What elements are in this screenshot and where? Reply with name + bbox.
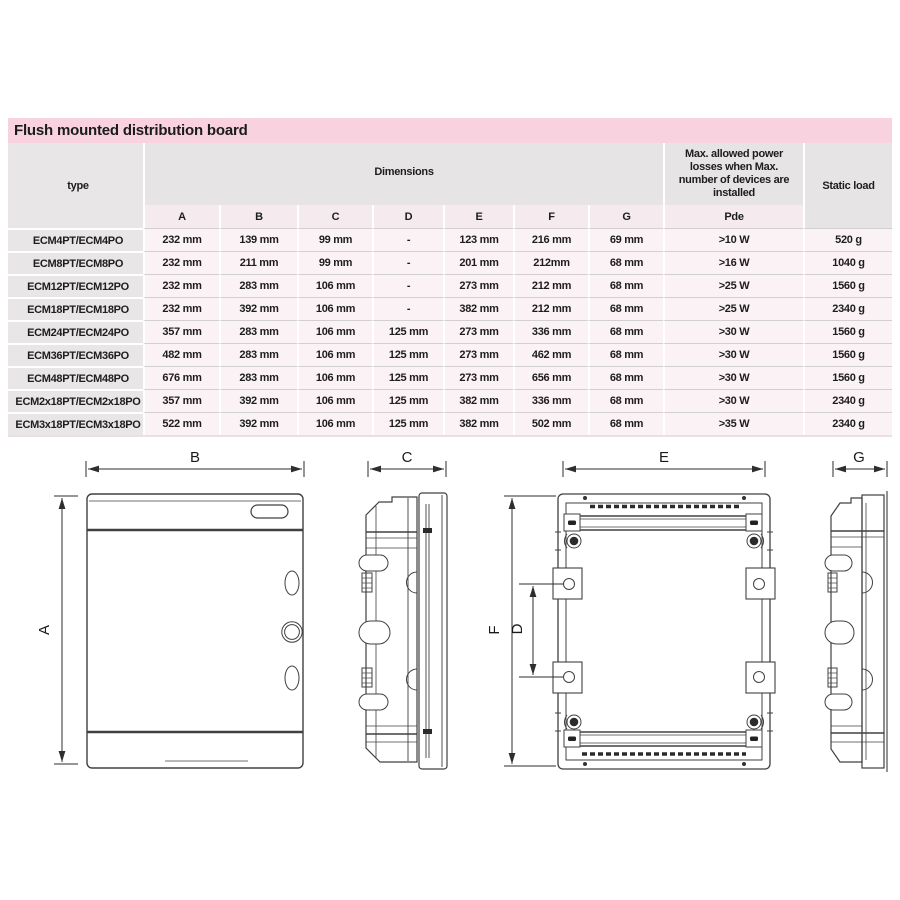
cell-type: ECM4PT/ECM4PO — [8, 228, 143, 251]
recess-box-outline — [558, 494, 770, 769]
cell-static-load: 1040 g — [803, 251, 892, 274]
cell-static-load: 1560 g — [803, 343, 892, 366]
col-header-d: D — [372, 205, 443, 228]
cell-dim-e: 273 mm — [443, 366, 513, 389]
cell-dim-b: 283 mm — [219, 320, 297, 343]
cell-dim-d: 125 mm — [372, 366, 443, 389]
cell-pde: >10 W — [663, 228, 803, 251]
cell-dim-e: 123 mm — [443, 228, 513, 251]
col-header-b: B — [219, 205, 297, 228]
dim-label-g: G — [853, 449, 865, 466]
cell-pde: >16 W — [663, 251, 803, 274]
cell-dim-g: 68 mm — [588, 274, 663, 297]
clip-latch — [568, 521, 576, 526]
cell-dim-b: 211 mm — [219, 251, 297, 274]
dim-label-e: E — [659, 449, 669, 466]
cell-dim-c: 106 mm — [297, 389, 372, 412]
dimension-c: C — [368, 449, 446, 477]
cell-dim-d: - — [372, 228, 443, 251]
col-header-e: E — [443, 205, 513, 228]
hinge-pin-upper — [423, 528, 432, 533]
dim-label-b: B — [190, 449, 200, 466]
cell-static-load: 1560 g — [803, 366, 892, 389]
dimensions-table: type Dimensions Max. allowed power losse… — [8, 143, 892, 437]
cell-dim-f: 212mm — [513, 251, 588, 274]
cable-knockout — [825, 621, 854, 644]
cell-dim-a: 232 mm — [143, 274, 219, 297]
cell-dim-f: 336 mm — [513, 389, 588, 412]
door-frame-profile — [419, 493, 447, 769]
cell-dim-c: 106 mm — [297, 274, 372, 297]
recessed-side-view-drawing: G — [825, 449, 887, 772]
corner-screws — [555, 532, 773, 731]
cell-dim-e: 382 mm — [443, 412, 513, 435]
cell-type: ECM12PT/ECM12PO — [8, 274, 143, 297]
cell-type: ECM24PT/ECM24PO — [8, 320, 143, 343]
cell-dim-a: 676 mm — [143, 366, 219, 389]
dim-label-f: F — [486, 625, 503, 634]
cell-dim-a: 357 mm — [143, 320, 219, 343]
fixing-lug-arc — [862, 572, 873, 593]
cell-dim-b: 392 mm — [219, 412, 297, 435]
rib-box — [362, 573, 372, 592]
cell-dim-d: - — [372, 297, 443, 320]
col-header-type: type — [8, 143, 143, 228]
dimension-g: G — [833, 449, 887, 477]
corner-screw-head — [570, 718, 579, 727]
section-title-bar: Flush mounted distribution board — [8, 118, 892, 143]
cell-static-load: 1560 g — [803, 274, 892, 297]
cell-dim-f: 502 mm — [513, 412, 588, 435]
cell-dim-c: 106 mm — [297, 320, 372, 343]
cell-dim-e: 273 mm — [443, 343, 513, 366]
cell-pde: >35 W — [663, 412, 803, 435]
cell-dim-g: 68 mm — [588, 251, 663, 274]
cell-dim-a: 357 mm — [143, 389, 219, 412]
cell-dim-e: 273 mm — [443, 320, 513, 343]
col-header-static-load: Static load — [803, 143, 892, 228]
cell-dim-c: 106 mm — [297, 412, 372, 435]
col-header-pde: Pde — [663, 205, 803, 228]
cell-dim-a: 232 mm — [143, 228, 219, 251]
cell-dim-e: 201 mm — [443, 251, 513, 274]
cell-dim-g: 68 mm — [588, 343, 663, 366]
screw-dot — [742, 762, 746, 766]
screw-dot — [583, 762, 587, 766]
cell-type: ECM48PT/ECM48PO — [8, 366, 143, 389]
cell-dim-b: 283 mm — [219, 274, 297, 297]
cell-dim-f: 216 mm — [513, 228, 588, 251]
screw-dot — [742, 496, 746, 500]
rib-box — [828, 573, 837, 592]
mounting-tab — [746, 662, 775, 693]
dim-label-c: C — [402, 449, 413, 466]
cell-dim-b: 283 mm — [219, 343, 297, 366]
flange-profile — [862, 495, 884, 768]
lock-knob-inner — [285, 625, 300, 640]
dimension-b: B — [86, 449, 304, 477]
dimension-a: A — [36, 496, 78, 764]
cable-knockout — [359, 555, 388, 571]
cell-type: ECM3x18PT/ECM3x18PO — [8, 412, 143, 435]
cell-dim-a: 522 mm — [143, 412, 219, 435]
dim-label-a: A — [36, 625, 53, 635]
cell-dim-d: 125 mm — [372, 343, 443, 366]
cell-dim-f: 462 mm — [513, 343, 588, 366]
cell-type: ECM8PT/ECM8PO — [8, 251, 143, 274]
rib-box — [362, 668, 372, 687]
cable-knockout — [359, 694, 388, 710]
cell-static-load: 520 g — [803, 228, 892, 251]
cell-dim-f: 656 mm — [513, 366, 588, 389]
col-header-f: F — [513, 205, 588, 228]
corner-screw-head — [750, 537, 759, 546]
cell-pde: >30 W — [663, 320, 803, 343]
cell-dim-a: 232 mm — [143, 297, 219, 320]
cell-dim-c: 99 mm — [297, 228, 372, 251]
cell-dim-b: 283 mm — [219, 366, 297, 389]
cell-static-load: 2340 g — [803, 389, 892, 412]
cell-dim-b: 139 mm — [219, 228, 297, 251]
ribbed-knockout — [362, 668, 372, 687]
col-header-power-losses: Max. allowed power losses when Max. numb… — [663, 143, 803, 205]
ribbed-knockout — [828, 573, 837, 592]
col-header-a: A — [143, 205, 219, 228]
cell-pde: >30 W — [663, 366, 803, 389]
cell-dim-c: 106 mm — [297, 366, 372, 389]
corner-screw-head — [750, 718, 759, 727]
cell-dim-a: 232 mm — [143, 251, 219, 274]
rib-box — [828, 668, 837, 687]
cell-dim-a: 482 mm — [143, 343, 219, 366]
front-view-drawing: B A — [36, 449, 304, 768]
cell-type: ECM2x18PT/ECM2x18PO — [8, 389, 143, 412]
col-header-g: G — [588, 205, 663, 228]
cell-dim-g: 68 mm — [588, 366, 663, 389]
back-view-drawing: E F — [486, 449, 775, 769]
cell-pde: >30 W — [663, 389, 803, 412]
datasheet-page: Flush mounted distribution board type Di… — [0, 0, 900, 900]
dim-label-d: D — [509, 623, 526, 634]
cell-dim-d: 125 mm — [372, 389, 443, 412]
door-handle-slot — [251, 505, 288, 518]
cell-dim-b: 392 mm — [219, 297, 297, 320]
cell-dim-e: 273 mm — [443, 274, 513, 297]
cell-dim-e: 382 mm — [443, 297, 513, 320]
cell-dim-c: 106 mm — [297, 343, 372, 366]
technical-drawings: B A C — [0, 440, 900, 800]
col-header-dimensions: Dimensions — [143, 143, 663, 205]
ribbed-knockout — [828, 668, 837, 687]
fixing-lug-arc — [862, 669, 873, 690]
cell-static-load: 2340 g — [803, 412, 892, 435]
cell-type: ECM36PT/ECM36PO — [8, 343, 143, 366]
col-header-c: C — [297, 205, 372, 228]
cell-dim-g: 68 mm — [588, 412, 663, 435]
cell-dim-f: 212 mm — [513, 297, 588, 320]
cell-dim-d: - — [372, 274, 443, 297]
cell-dim-e: 382 mm — [443, 389, 513, 412]
cell-dim-d: 125 mm — [372, 412, 443, 435]
ribbed-knockout — [362, 573, 372, 592]
cell-pde: >25 W — [663, 297, 803, 320]
hinge-slot-lower — [285, 666, 299, 690]
cell-dim-g: 68 mm — [588, 297, 663, 320]
corner-screw-head — [570, 537, 579, 546]
cell-dim-c: 99 mm — [297, 251, 372, 274]
cell-static-load: 1560 g — [803, 320, 892, 343]
cell-static-load: 2340 g — [803, 297, 892, 320]
cell-pde: >30 W — [663, 343, 803, 366]
cell-dim-g: 69 mm — [588, 228, 663, 251]
screw-dot — [583, 496, 587, 500]
dimension-e: E — [563, 449, 765, 477]
section-title: Flush mounted distribution board — [14, 122, 248, 139]
clip-latch — [568, 737, 576, 742]
clip-latch — [750, 737, 758, 742]
cell-dim-d: - — [372, 251, 443, 274]
side-view-drawing: C — [359, 449, 447, 769]
cell-dim-f: 212 mm — [513, 274, 588, 297]
clip-latch — [750, 521, 758, 526]
mounting-tabs — [553, 568, 775, 693]
enclosure-front-outline — [87, 494, 303, 768]
cable-knockout — [825, 555, 852, 571]
cable-knockout — [825, 694, 852, 710]
cell-dim-b: 392 mm — [219, 389, 297, 412]
cell-dim-c: 106 mm — [297, 297, 372, 320]
cell-pde: >25 W — [663, 274, 803, 297]
cell-dim-g: 68 mm — [588, 389, 663, 412]
bottom-din-rail — [564, 730, 762, 747]
hinge-pin-lower — [423, 729, 432, 734]
cable-knockout — [359, 621, 390, 644]
cell-dim-d: 125 mm — [372, 320, 443, 343]
hinge-slot-upper — [285, 571, 299, 595]
cell-dim-f: 336 mm — [513, 320, 588, 343]
mounting-tab — [746, 568, 775, 599]
top-din-rail — [564, 514, 762, 531]
cell-dim-g: 68 mm — [588, 320, 663, 343]
cell-type: ECM18PT/ECM18PO — [8, 297, 143, 320]
recess-box-inner — [566, 503, 762, 760]
